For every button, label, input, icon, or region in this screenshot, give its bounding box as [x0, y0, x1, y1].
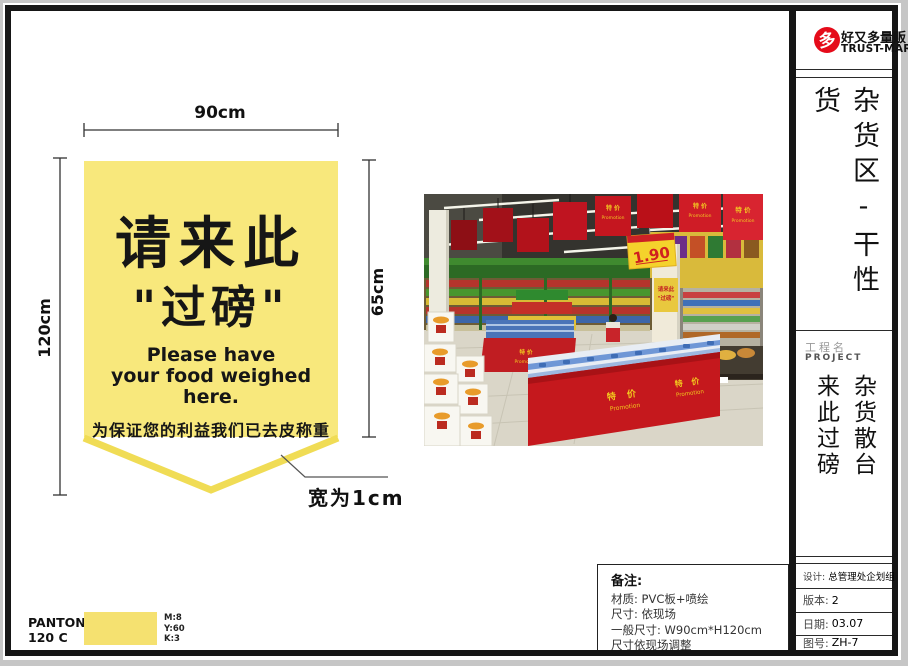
table-promo-cn: 特 价 — [520, 348, 533, 356]
meta-label: 设计: — [803, 569, 825, 583]
spec-sheet: 请来此 "过磅" Please have your food weighed h… — [0, 0, 908, 666]
column-rule — [796, 330, 892, 331]
meta-value: 03.07 — [832, 617, 864, 630]
banner-promo-cn: 特 价 — [693, 202, 708, 210]
banner-promo-en: Promotion — [602, 215, 625, 221]
meta-row-drawing-no: 图号: ZH-7 — [796, 635, 892, 650]
meta-value: 总管理处企划组 — [828, 569, 895, 583]
column-divider — [789, 5, 796, 656]
pennant-hem-band — [84, 438, 338, 490]
dimension-width-label: 90cm — [150, 103, 290, 123]
logo-character: 多 — [817, 29, 837, 52]
meta-label: 日期: — [803, 616, 829, 632]
band-width-note: 宽为1cm — [308, 482, 405, 511]
banner-headline-cn: 请来此 — [84, 217, 338, 273]
column-sign-text2: "过磅" — [658, 294, 675, 302]
banner-promo-cn: 特 价 — [606, 204, 621, 212]
meta-label: 版本: — [803, 592, 829, 608]
column-rule — [796, 77, 892, 78]
meta-row-version: 版本: 2 — [796, 588, 892, 612]
dimension-height-full-label: 120cm — [35, 293, 55, 363]
banner-promo-en: Promotion — [732, 218, 755, 224]
banner-line-en2: your food weighed here. — [84, 366, 338, 408]
note-material: 材质: PVC板+喷绘 — [611, 592, 788, 607]
note-general-size: 一般尺寸: W90cm*H120cm — [611, 623, 788, 638]
banner-subline-cn: 为保证您的利益我们已去皮称重 — [84, 417, 338, 441]
meta-row-date: 日期: 03.07 — [796, 612, 892, 635]
store-photo: 请来此 "过磅" 1.90 特 价 Promotion 特 价 Promotio… — [424, 194, 763, 446]
notes-box: 备注: 材质: PVC板+喷绘 尺寸: 依现场 一般尺寸: W90cm*H120… — [597, 564, 789, 653]
column-rule — [796, 556, 892, 557]
pantone-swatch — [84, 612, 157, 645]
project-name-col-right: 杂货散台 — [846, 374, 880, 492]
banner-line-en1: Please have — [84, 345, 338, 366]
measure-line-top — [84, 123, 338, 137]
measure-line-left — [53, 158, 67, 495]
note-adjust: 尺寸依现场调整 — [611, 638, 788, 653]
project-label-en: PROJECT — [805, 353, 862, 363]
banner-headline2-cn: "过磅" — [84, 285, 338, 330]
dimension-height-body-label: 65cm — [368, 262, 388, 322]
cmyk-y: Y:60 — [164, 624, 185, 635]
banner-promo-cn: 特 价 — [735, 205, 751, 214]
cmyk-k: K:3 — [164, 634, 185, 645]
pennant-banner: 请来此 "过磅" Please have your food weighed h… — [84, 161, 338, 437]
trustmart-logo-icon: 多 — [813, 26, 841, 54]
project-name-vertical: 来此过磅 杂货散台 — [796, 374, 892, 492]
cmyk-m: M:8 — [164, 613, 185, 624]
meta-value: ZH-7 — [832, 636, 859, 649]
brand-name-en: TRUST-MART — [841, 43, 908, 55]
project-name-col-left: 来此过磅 — [809, 374, 843, 492]
meta-label: 图号: — [803, 635, 829, 651]
section-title-vertical: 杂货区-干性货 — [796, 86, 892, 330]
banner-promo-en: Promotion — [689, 213, 712, 219]
meta-row-designer: 设计: 总管理处企划组 — [796, 563, 892, 588]
note-size: 尺寸: 依现场 — [611, 607, 788, 622]
cmyk-values: M:8 Y:60 K:3 — [164, 613, 185, 645]
notes-title: 备注: — [611, 570, 788, 589]
column-sign-text1: 请来此 — [658, 285, 675, 293]
column-rule — [796, 69, 892, 70]
meta-value: 2 — [832, 594, 839, 607]
